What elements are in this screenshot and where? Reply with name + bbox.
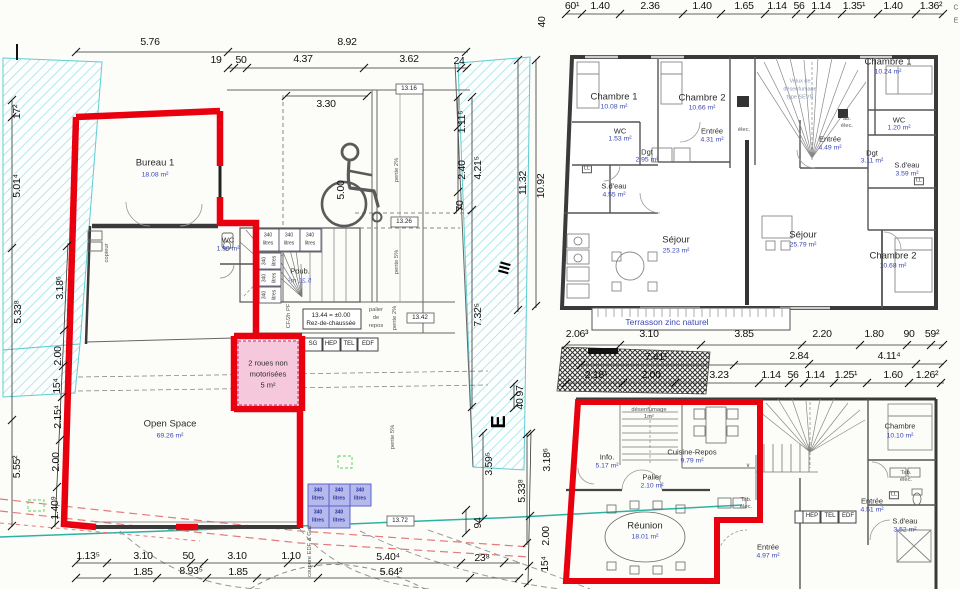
- hatched-band: [557, 347, 710, 394]
- first-floor-plan: [562, 57, 936, 330]
- floor-plan-drawing: [0, 0, 960, 589]
- bike-room: [238, 341, 298, 405]
- site-lines: [0, 456, 742, 589]
- ground-unit-red-outline: [64, 111, 302, 528]
- floor-plan-sheet: 5.768.9219504.373.62243.305.0011.3210.92…: [0, 0, 960, 589]
- wheelchair-icon: [322, 144, 382, 226]
- second-floor-unit-red-outline: [566, 402, 760, 581]
- ground-floor-plan: [64, 62, 488, 528]
